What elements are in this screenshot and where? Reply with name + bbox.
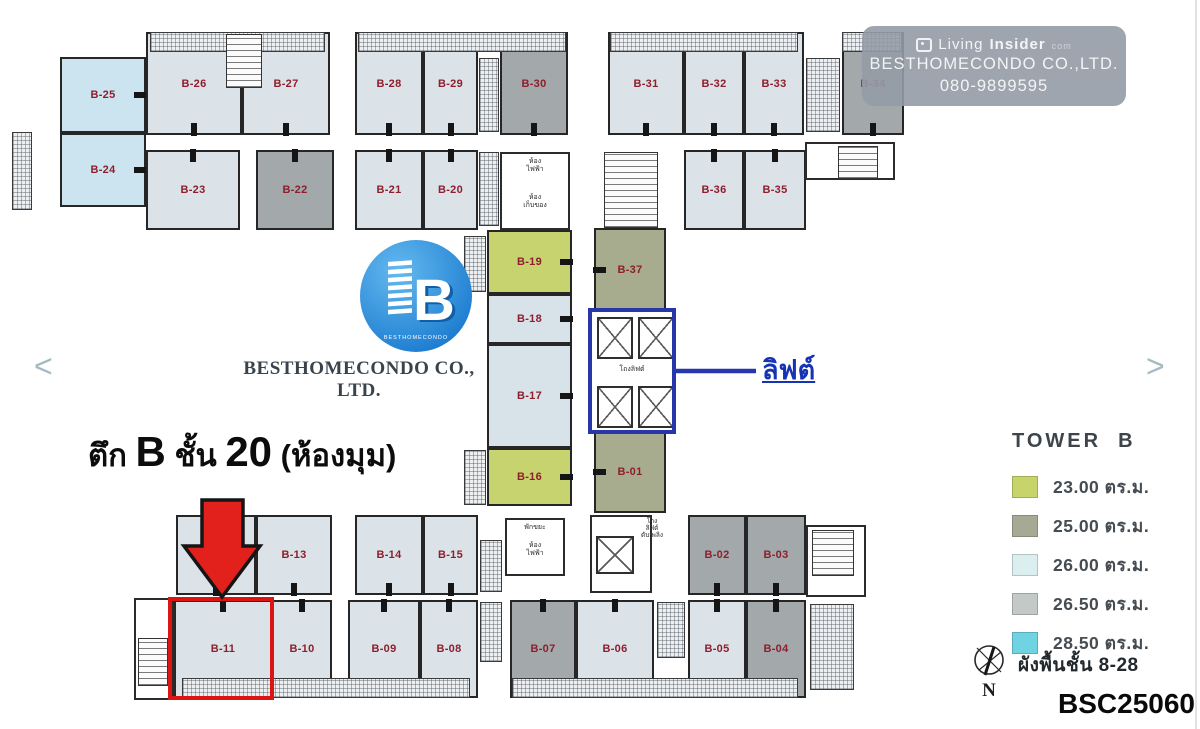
room-b-22: B-22: [256, 150, 334, 230]
door-jamb: [773, 599, 779, 612]
door-jamb: [386, 583, 392, 596]
door-jamb: [771, 123, 777, 136]
room-b-35: B-35: [744, 150, 806, 230]
room-label: B-18: [517, 313, 542, 325]
room-label: B-29: [438, 78, 463, 90]
legend-title: TOWER B: [1012, 430, 1149, 453]
door-jamb: [448, 123, 454, 136]
room-b-37: B-37: [594, 228, 666, 312]
room-b-17: B-17: [487, 344, 572, 448]
room-label: B-15: [438, 549, 463, 561]
room-b-14: B-14: [355, 515, 423, 595]
plan-annotation: ห้อง ไฟฟ้า: [500, 158, 570, 173]
elevator-highlight-box: [588, 308, 676, 434]
door-jamb: [714, 599, 720, 612]
door-jamb: [446, 599, 452, 612]
watermark-brand-bold: Insider: [990, 35, 1046, 54]
room-label: B-21: [376, 184, 401, 196]
hatch-area: [479, 152, 499, 226]
watermark: LivingInsidercom BESTHOMECONDO CO.,LTD. …: [862, 26, 1126, 106]
room-b-23: B-23: [146, 150, 240, 230]
room-b-02: B-02: [688, 515, 746, 595]
door-jamb: [711, 149, 717, 162]
room-label: B-28: [376, 78, 401, 90]
logo-brand-small: BESTHOMECONDO: [384, 335, 448, 341]
legend-swatch: [1012, 593, 1038, 615]
door-jamb: [773, 583, 779, 596]
room-label: B-03: [763, 549, 788, 561]
door-jamb: [283, 123, 289, 136]
svg-text:B: B: [413, 268, 455, 333]
door-jamb: [593, 469, 606, 475]
room-b-12: B-12: [176, 515, 256, 595]
heading-thai-1: ตึก: [88, 438, 136, 473]
room-label: B-09: [371, 643, 396, 655]
door-jamb: [593, 267, 606, 273]
watermark-company: BESTHOMECONDO CO.,LTD.: [869, 54, 1118, 75]
stairs-area: [138, 638, 168, 686]
stairs-area: [838, 146, 878, 179]
door-jamb: [540, 599, 546, 612]
watermark-brand-regular: Living: [938, 35, 983, 54]
door-jamb: [560, 259, 573, 265]
door-jamb: [531, 123, 537, 136]
room-label: B-25: [90, 89, 115, 101]
door-jamb: [386, 123, 392, 136]
compass: N: [970, 642, 1008, 698]
room-label: B-24: [90, 164, 115, 176]
carousel-prev-button[interactable]: <: [28, 350, 59, 382]
room-b-21: B-21: [355, 150, 423, 230]
room-label: B-04: [763, 643, 788, 655]
carousel-next-button[interactable]: >: [1140, 350, 1171, 382]
besthomecondo-logo-icon: B B BESTHOMECONDO: [358, 238, 474, 354]
hatch-area: [12, 132, 32, 210]
watermark-brand: LivingInsidercom: [916, 35, 1071, 54]
lift-area: [596, 536, 634, 574]
living-insider-icon: [916, 38, 932, 52]
hatch-area: [358, 32, 566, 52]
floor-range-note: ผังพื้นชั้น 8-28: [1018, 650, 1139, 680]
room-label: B-16: [517, 471, 542, 483]
plan-code: BSC25060: [1058, 688, 1195, 720]
room-label: B-19: [517, 256, 542, 268]
watermark-phone: 080-9899595: [940, 76, 1048, 97]
door-jamb: [448, 149, 454, 162]
watermark-brand-suffix: com: [1052, 41, 1072, 53]
heading-floor-number: 20: [225, 428, 272, 475]
room-label: B-36: [701, 184, 726, 196]
legend-label: 26.00 ตร.ม.: [1053, 551, 1149, 579]
legend-item: 25.00 ตร.ม.: [1012, 512, 1149, 540]
page-title: ตึก B ชั้น 20 (ห้องมุม): [88, 428, 396, 480]
room-label: B-14: [376, 549, 401, 561]
heading-thai-2: ชั้น: [166, 438, 225, 473]
door-jamb: [292, 149, 298, 162]
room-label: B-08: [436, 643, 461, 655]
legend-label: 25.00 ตร.ม.: [1053, 512, 1149, 540]
room-label: B-37: [617, 264, 642, 276]
door-jamb: [560, 316, 573, 322]
room-b-15: B-15: [423, 515, 478, 595]
legend: TOWER B 23.00 ตร.ม.25.00 ตร.ม.26.00 ตร.ม…: [1012, 430, 1149, 668]
legend-items: 23.00 ตร.ม.25.00 ตร.ม.26.00 ตร.ม.26.50 ต…: [1012, 473, 1149, 657]
door-jamb: [711, 123, 717, 136]
legend-item: 26.00 ตร.ม.: [1012, 551, 1149, 579]
hatch-area: [806, 58, 840, 132]
room-label: B-10: [289, 643, 314, 655]
room-b-01: B-01: [594, 430, 666, 513]
room-label: B-30: [521, 78, 546, 90]
room-label: B-22: [282, 184, 307, 196]
door-jamb: [191, 123, 197, 136]
stairs-area: [226, 34, 262, 88]
company-name: BESTHOMECONDO CO., LTD.: [228, 358, 490, 402]
room-label: B-27: [273, 78, 298, 90]
plan-annotation: โถง ลิฟต์ ดับเพลิง: [634, 518, 670, 539]
door-jamb: [386, 149, 392, 162]
room-label: B-06: [602, 643, 627, 655]
compass-north-label: N: [970, 683, 1008, 698]
plan-annotation: พักขยะ: [505, 524, 565, 532]
door-jamb: [291, 583, 297, 596]
door-jamb: [560, 474, 573, 480]
legend-item: 26.50 ตร.ม.: [1012, 590, 1149, 618]
room-label: B-12: [203, 549, 228, 561]
plan-annotation: ห้อง เก็บของ: [500, 194, 570, 209]
door-jamb: [381, 599, 387, 612]
door-jamb: [643, 123, 649, 136]
door-jamb: [448, 583, 454, 596]
door-jamb: [299, 599, 305, 612]
room-label: B-13: [281, 549, 306, 561]
heading-thai-3: (ห้องมุม): [272, 438, 396, 473]
legend-swatch: [1012, 554, 1038, 576]
room-label: B-31: [633, 78, 658, 90]
door-jamb: [714, 583, 720, 596]
door-jamb: [870, 123, 876, 136]
room-label: B-07: [530, 643, 555, 655]
room-label: B-20: [438, 184, 463, 196]
compass-icon: [971, 642, 1007, 678]
hatch-area: [657, 602, 685, 658]
room-label: B-33: [761, 78, 786, 90]
door-jamb: [772, 149, 778, 162]
stairs-area: [604, 152, 658, 228]
stairs-area: [812, 530, 854, 576]
hatch-area: [464, 450, 486, 505]
room-b-36: B-36: [684, 150, 744, 230]
room-b-18: B-18: [487, 294, 572, 344]
hatch-area: [480, 540, 502, 592]
legend-label: 26.50 ตร.ม.: [1053, 590, 1149, 618]
door-jamb: [612, 599, 618, 612]
elevator-label: ลิฟต์: [762, 348, 815, 391]
highlight-box-b11: [168, 597, 274, 700]
room-b-03: B-03: [746, 515, 806, 595]
room-b-13: B-13: [256, 515, 332, 595]
room-label: B-02: [704, 549, 729, 561]
plan-annotation: ห้อง ไฟฟ้า: [505, 542, 565, 557]
floorplan-page: B-25B-24B-26B-27B-28B-29B-30B-31B-32B-33…: [0, 0, 1200, 729]
hatch-area: [479, 58, 499, 132]
room-label: B-17: [517, 390, 542, 402]
room-b-19: B-19: [487, 230, 572, 294]
room-label: B-32: [701, 78, 726, 90]
room-b-20: B-20: [423, 150, 478, 230]
door-jamb: [213, 583, 219, 596]
room-label: B-23: [180, 184, 205, 196]
hatch-area: [810, 604, 854, 690]
hatch-area: [512, 678, 798, 698]
legend-swatch: [1012, 515, 1038, 537]
room-b-16: B-16: [487, 448, 572, 506]
room-label: B-35: [762, 184, 787, 196]
room-label: B-01: [617, 466, 642, 478]
room-b-25: B-25: [60, 57, 146, 133]
door-jamb: [560, 393, 573, 399]
door-jamb: [190, 149, 196, 162]
hatch-area: [480, 602, 502, 662]
room-label: B-26: [181, 78, 206, 90]
heading-tower-letter: B: [136, 428, 166, 475]
legend-label: 23.00 ตร.ม.: [1053, 473, 1149, 501]
legend-item: 23.00 ตร.ม.: [1012, 473, 1149, 501]
room-b-24: B-24: [60, 133, 146, 207]
carousel-next-sliver: [1195, 0, 1197, 729]
room-label: B-05: [704, 643, 729, 655]
hatch-area: [610, 32, 798, 52]
legend-swatch: [1012, 476, 1038, 498]
